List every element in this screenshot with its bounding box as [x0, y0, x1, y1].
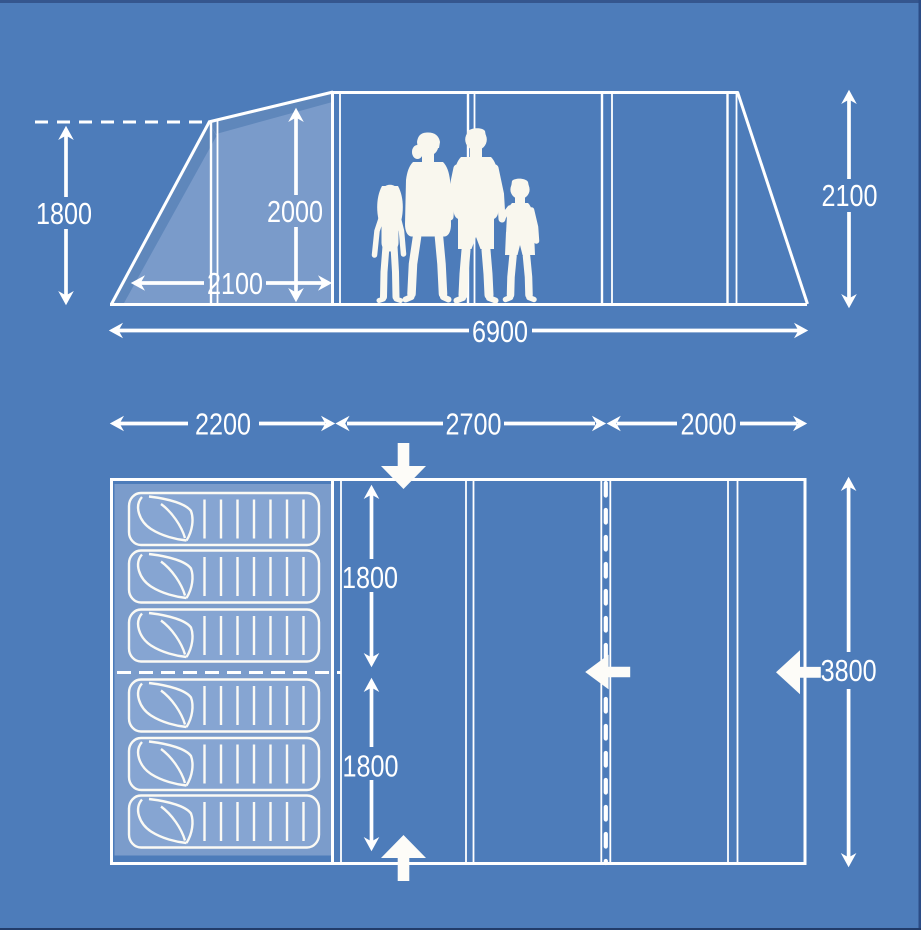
svg-text:6900: 6900: [472, 315, 528, 349]
svg-text:2000: 2000: [267, 195, 323, 229]
svg-text:1800: 1800: [36, 197, 92, 231]
svg-text:2000: 2000: [681, 408, 737, 442]
svg-text:1800: 1800: [342, 561, 398, 595]
svg-text:2100: 2100: [207, 267, 263, 301]
svg-text:2100: 2100: [822, 179, 878, 213]
svg-text:2700: 2700: [446, 408, 502, 442]
svg-text:1800: 1800: [343, 750, 399, 784]
svg-text:3800: 3800: [821, 654, 877, 688]
svg-text:2200: 2200: [195, 408, 251, 442]
